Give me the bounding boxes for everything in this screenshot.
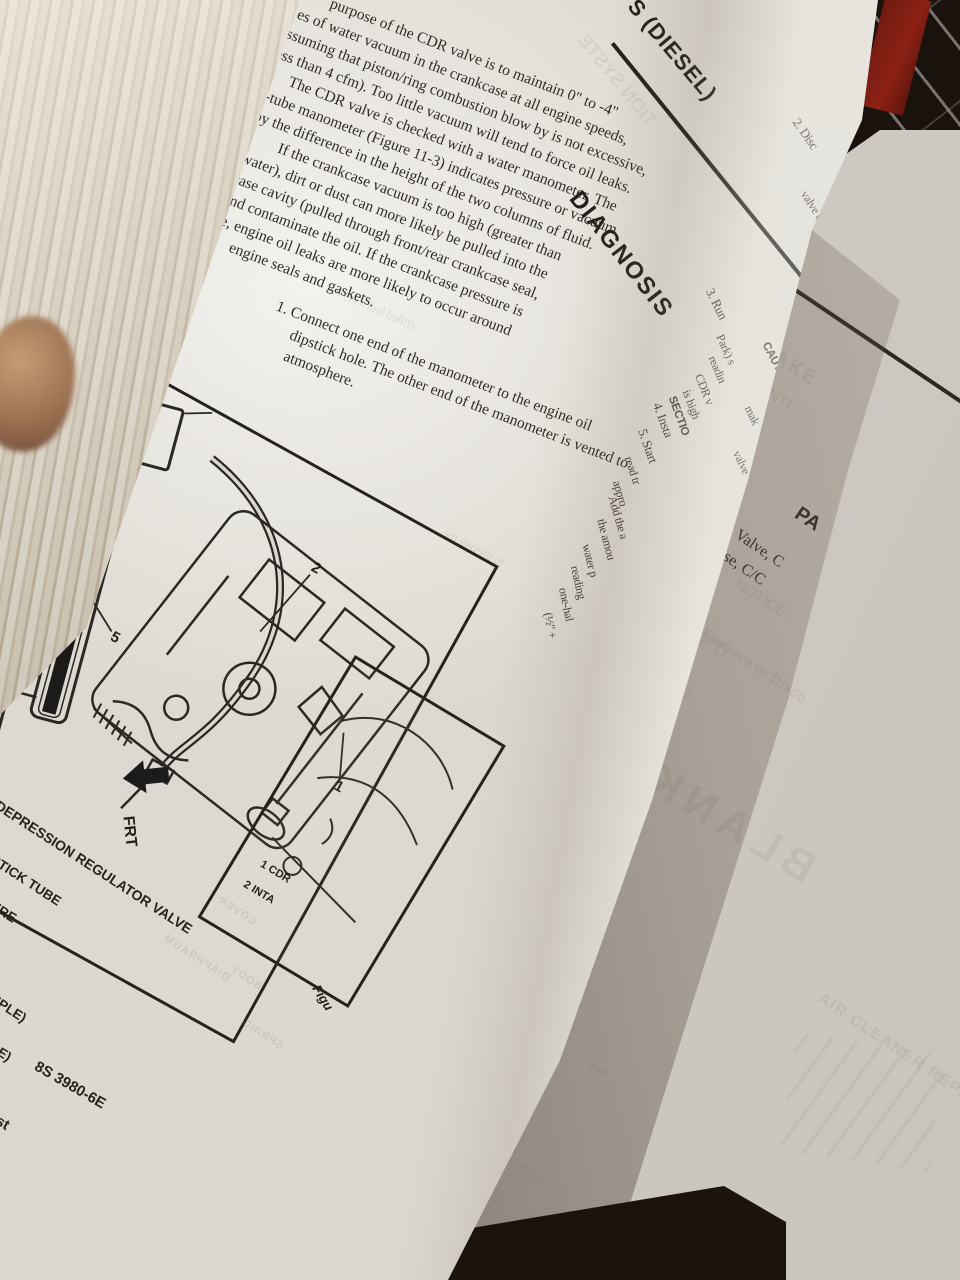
photo-open-service-manual: ON-VEHICL ow any solvent to come in of t… [0, 0, 960, 1280]
ghost-text-mirrored: fire [586, 1057, 611, 1081]
ghost-text-mirrored: clamp [517, 1158, 556, 1193]
paper-scuff-marks [780, 1032, 945, 1172]
